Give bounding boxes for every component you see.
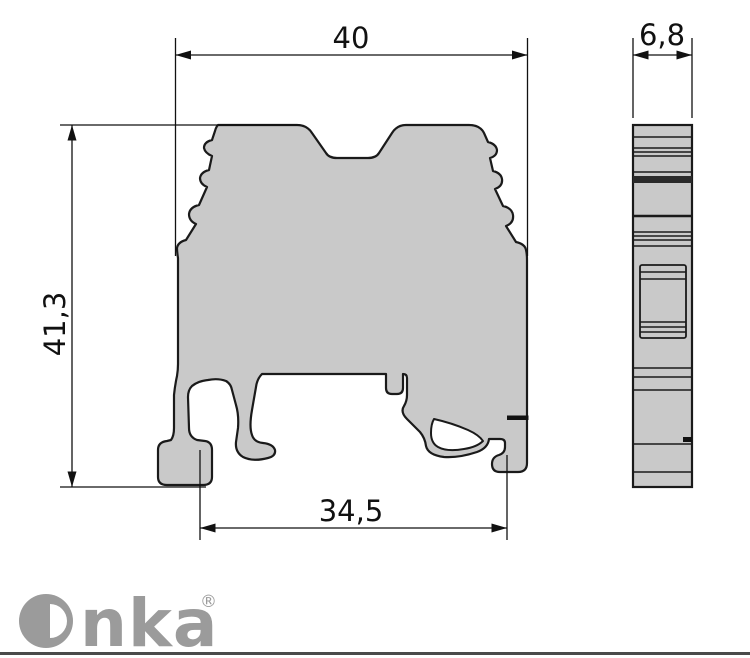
registered-trademark-icon: ® — [200, 592, 217, 612]
arrowhead-right — [512, 51, 528, 60]
arrowhead-bottom — [68, 472, 77, 488]
arrowhead-left — [200, 524, 216, 533]
dimension-label-thickness: 6,8 — [639, 18, 685, 52]
foot-separation-line — [507, 416, 529, 421]
arrowhead-top — [68, 125, 77, 141]
dimension-label-width-top: 40 — [333, 21, 370, 55]
brand-logo: nka ® — [19, 585, 218, 658]
logo-text: nka — [80, 585, 218, 658]
technical-drawing: 40 6,8 41,3 34,5 nka ® — [0, 0, 750, 658]
dimension-label-height: 41,3 — [38, 292, 72, 357]
side-latch-tick — [683, 437, 692, 442]
footer-divider — [0, 652, 750, 655]
arrowhead-left — [176, 51, 192, 60]
side-dark-band — [633, 176, 692, 183]
drawing-page: 40 6,8 41,3 34,5 nka ® — [0, 0, 750, 658]
dimension-label-width-bottom: 34,5 — [319, 494, 384, 528]
side-view — [633, 125, 692, 487]
arrowhead-right — [492, 524, 508, 533]
front-view — [158, 125, 529, 485]
